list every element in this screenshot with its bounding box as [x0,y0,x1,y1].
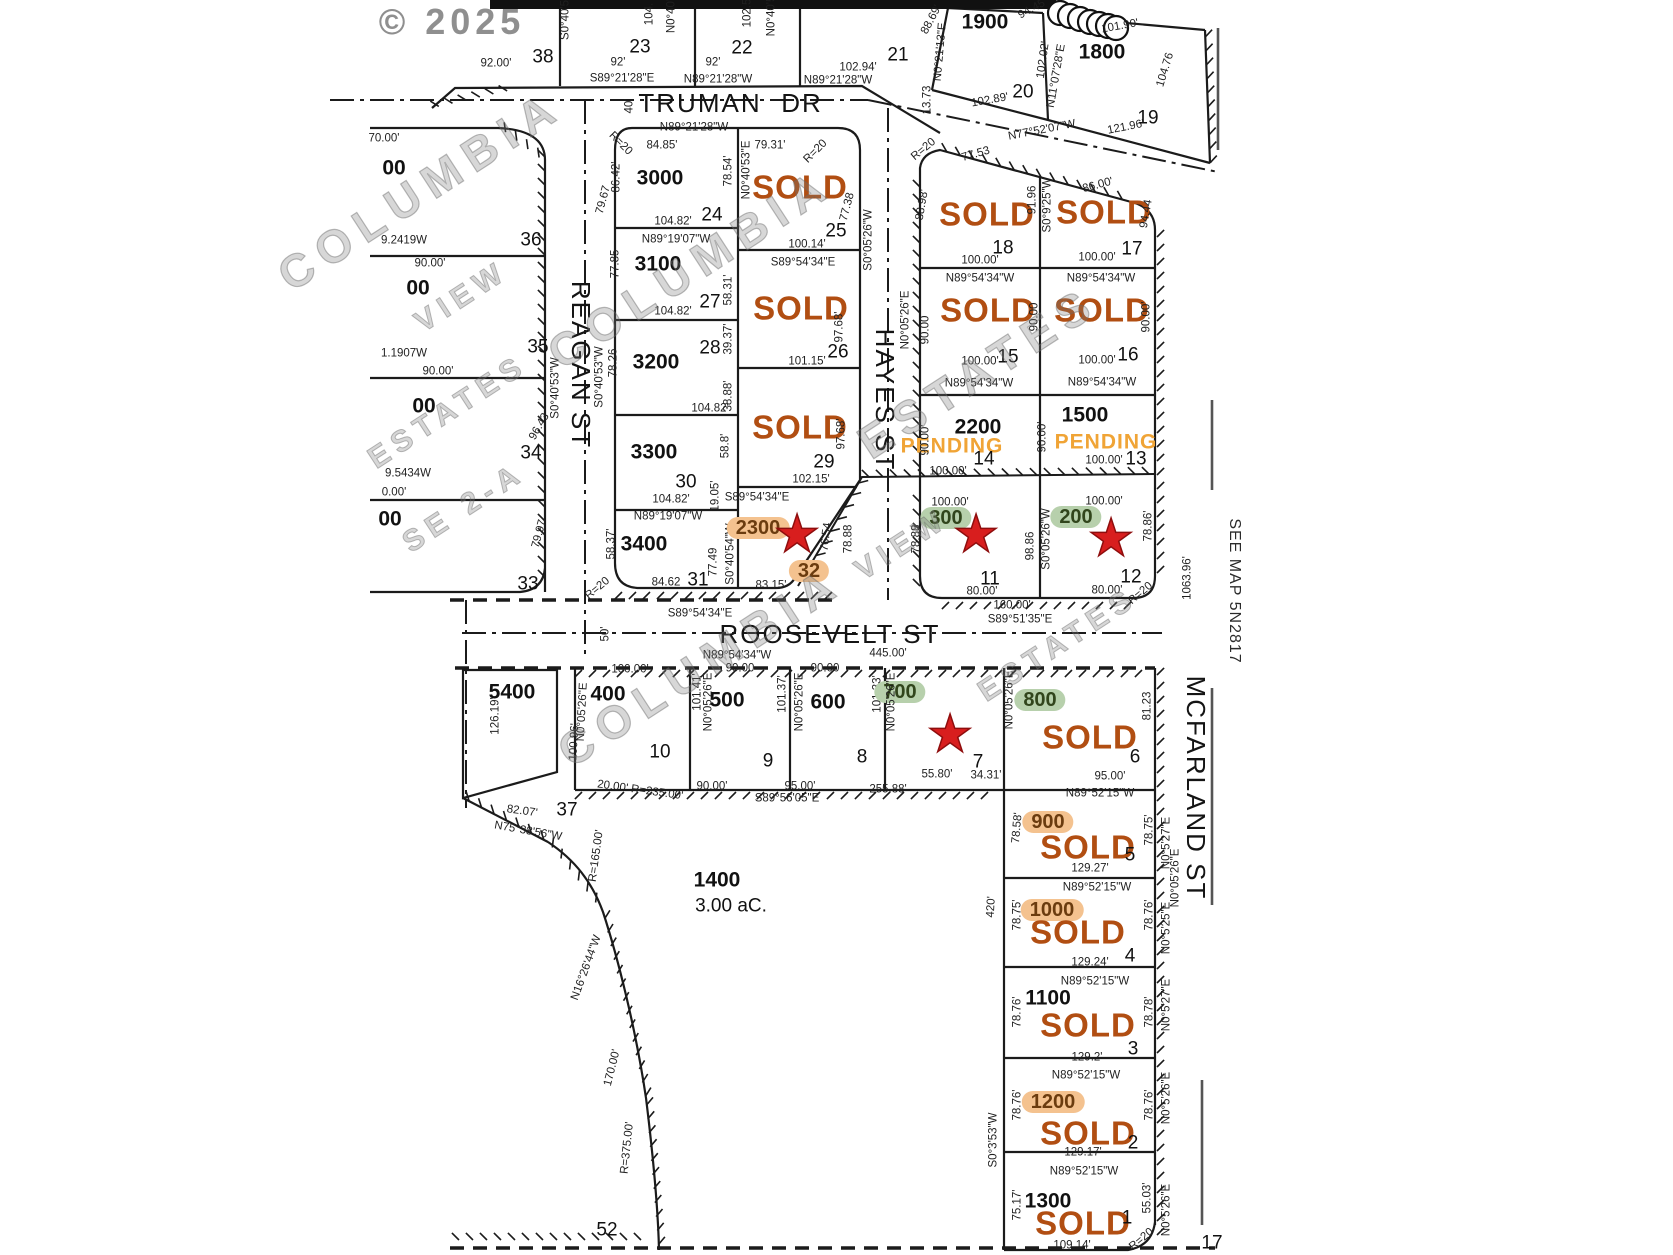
plat-map: © 2025SEE MAP 5N281717523892.00'2392'S89… [0,0,1673,1255]
map-linework [0,0,1673,1255]
map-edge-bar [490,0,1056,9]
tree-icon [1104,16,1128,40]
